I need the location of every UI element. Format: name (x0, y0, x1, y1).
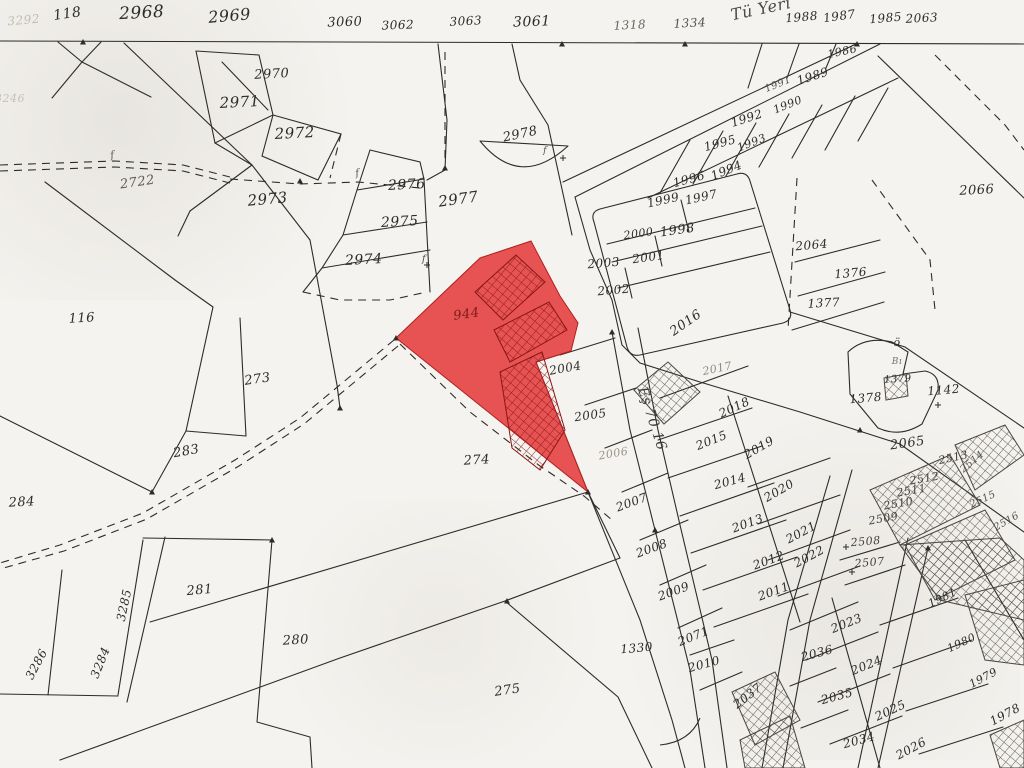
parcel-label-2005: 2005 (572, 406, 607, 425)
parcel-label-2014: 2014 (711, 470, 747, 492)
path-boundary-dashed-line (872, 180, 935, 310)
parcel-label-2722: 2722 (118, 173, 156, 193)
parcel-boundary-line (858, 88, 888, 141)
parcel-boundary-line (790, 312, 1024, 428)
parcel-label-Bı: Bı (891, 357, 903, 367)
parcel-boundary-line (563, 44, 856, 182)
parcel-label-ö: ö (893, 336, 900, 349)
parcel-boundary-line (0, 416, 152, 492)
parcel-label-2018: 2018 (716, 394, 752, 421)
parcel-label-2015: 2015 (693, 428, 729, 454)
parcel-boundary-line (58, 42, 101, 62)
survey-mark-plus (935, 402, 941, 408)
parcel-label-1991: 1991 (763, 74, 793, 94)
path-boundary-dashed-line (303, 292, 427, 300)
parcel-label-2023: 2023 (828, 611, 864, 637)
road-name-label: Tü Yeri (729, 0, 793, 24)
parcel-label-2507: 2507 (853, 555, 885, 571)
parcel-boundary-line (175, 280, 213, 307)
parcel-label-2008: 2008 (633, 536, 669, 561)
parcel-boundary-line (186, 431, 246, 436)
survey-mark-triangle (682, 41, 688, 47)
parcel-label-3060: 3060 (327, 14, 363, 30)
parcel-label-1993: 1993 (735, 131, 768, 154)
parcel-label-3061: 3061 (513, 13, 551, 30)
parcel-boundary-line (748, 44, 762, 88)
parcel-boundary-line (370, 150, 424, 179)
parcel-label-2006: 2006 (597, 445, 630, 463)
survey-mark-triangle (297, 178, 303, 184)
parcel-label-273: 273 (242, 370, 271, 389)
parcel-label-116: 116 (68, 310, 95, 326)
parcel-label-2022: 2022 (791, 543, 827, 571)
survey-mark-triangle (609, 329, 615, 335)
parcel-label-1318: 1318 (613, 17, 646, 33)
parcel-label-2973: 2973 (246, 188, 289, 210)
survey-mark-plus (843, 544, 849, 550)
parcel-label-283: 283 (171, 442, 201, 462)
parcel-boundary-line (605, 430, 652, 448)
parcel-label-275: 275 (492, 681, 521, 700)
survey-mark-plus (560, 155, 566, 161)
parcel-label-2013: 2013 (729, 511, 765, 536)
parcel-label-f: f (542, 146, 548, 156)
parcel-label-284: 284 (7, 494, 35, 510)
parcel-label-118: 118 (52, 4, 82, 24)
parcel-label-2012: 2012 (750, 548, 786, 573)
parcel-label-2007: 2007 (613, 490, 649, 515)
parcel-label-1979: 1979 (967, 665, 1000, 691)
parcel-label-3246: 3246 (0, 92, 25, 105)
parcel-boundary-line (303, 150, 370, 292)
parcel-boundary-line (215, 143, 252, 165)
parcel-label-2025: 2025 (872, 697, 908, 724)
parcel-label-2026: 2026 (893, 735, 929, 763)
parcel-label-2516: 2516 (991, 510, 1021, 534)
parcel-label-2016: 2016 (666, 307, 704, 340)
parcel-label-2508: 2508 (849, 534, 881, 550)
parcel-boundary-line (825, 96, 855, 150)
parcel-boundary-line (60, 601, 505, 760)
parcel-boundary-line (424, 179, 430, 292)
parcel-label-1980: 1980 (945, 631, 978, 655)
building-hatches (634, 362, 1024, 768)
survey-mark-triangle (652, 527, 658, 533)
parcel-label-2011: 2011 (755, 579, 791, 604)
parcel-label-280: 280 (281, 632, 309, 648)
building-hatch (965, 580, 1024, 665)
parcel-label-1142: 1142 (927, 382, 961, 399)
parcel-label-1987: 1987 (822, 7, 856, 25)
parcel-label-2004: 2004 (547, 358, 582, 378)
parcel-label-2009: 2009 (655, 579, 691, 604)
parcel-boundary-line (505, 558, 620, 601)
parcel-label-2970: 2970 (253, 66, 290, 83)
parcel-label-1992: 1992 (729, 107, 764, 130)
parcel-label-2971: 2971 (218, 92, 260, 112)
survey-mark-triangle (857, 427, 863, 433)
parcel-boundary-line (82, 62, 151, 97)
parcel-label-2977: 2977 (436, 187, 479, 211)
parcel-boundary-line (190, 165, 252, 211)
parcel-boundary-line (257, 722, 312, 768)
parcel-boundary-line (801, 710, 848, 728)
parcel-label-1985: 1985 (869, 10, 903, 27)
parcel-label-2034: 2034 (840, 729, 876, 751)
parcel-label-281: 281 (185, 582, 214, 599)
parcel-label-274: 274 (462, 452, 490, 468)
parcel-label-f: f (109, 149, 118, 161)
parcel-label-2064: 2064 (794, 237, 829, 254)
parcel-label-2976: 2976 (387, 176, 426, 194)
parcel-label-2036: 2036 (798, 642, 834, 664)
parcel-label-2972: 2972 (273, 123, 315, 143)
parcel-boundary-line (512, 44, 548, 125)
parcel-label-2065: 2065 (888, 434, 926, 454)
parcel-boundary-line (700, 672, 742, 690)
parcel-boundary-line (150, 492, 588, 622)
parcel-label-2003: 2003 (586, 255, 621, 272)
parcel-boundary-line (575, 197, 622, 345)
parcel-boundary-line (48, 570, 62, 695)
parcel-boundary-line (45, 182, 175, 280)
parcel-boundary-line (0, 694, 118, 696)
parcel-boundary-line (257, 540, 272, 722)
parcel-boundary-line (919, 727, 1003, 754)
path-boundary-dashed-line (330, 134, 341, 178)
parcel-boundary-line (438, 44, 447, 170)
parcel-boundary-line (790, 668, 836, 686)
parcel-boundary-line (427, 170, 445, 180)
parcel-label-1376: 1376 (834, 265, 868, 282)
parcel-boundary-line (588, 492, 685, 768)
survey-mark-triangle (149, 489, 155, 495)
parcel-label-2968: 2968 (118, 2, 165, 24)
parcel-label-3285: 3285 (114, 588, 134, 623)
parcel-label-1986: 1986 (826, 42, 858, 61)
parcel-label-2002: 2002 (596, 282, 631, 299)
path-boundary-dashed-line (0, 346, 398, 569)
parcel-boundary-line (186, 307, 213, 431)
parcel-label-2975: 2975 (380, 213, 419, 231)
survey-mark-triangle (442, 165, 448, 171)
path-boundary-dashed-line (935, 55, 1024, 150)
curved-boundary (660, 718, 700, 745)
path-boundary-dashed-line (0, 167, 230, 183)
parcel-label-1378: 1378 (849, 390, 883, 407)
parcel-label-2066: 2066 (958, 182, 995, 199)
map-viewport: 3292324611829682969306030623063306113181… (0, 0, 1024, 768)
parcel-label-3286: 3286 (23, 646, 51, 681)
parcel-label-2063: 2063 (904, 10, 938, 26)
parcel-label-1989: 1989 (795, 65, 830, 88)
parcel-label-1995: 1995 (702, 132, 737, 154)
parcel-label-2978: 2978 (501, 124, 539, 146)
parcel-label-1998: 1998 (659, 221, 696, 241)
parcel-boundary-line (480, 141, 568, 146)
parcel-label-2974: 2974 (344, 251, 383, 269)
cadastral-map: 3292324611829682969306030623063306113181… (0, 0, 1024, 768)
parcel-boundary-line (792, 105, 822, 158)
parcel-label-2021: 2021 (783, 519, 819, 547)
parcel-boundary-line (585, 388, 636, 405)
parcel-label-1999: 1999 (646, 190, 681, 210)
parcel-label-1379: 1379 (884, 373, 912, 385)
parcel-label-1334: 1334 (673, 15, 706, 31)
parcel-label-2017: 2017 (700, 359, 733, 378)
parcel-label-2019: 2019 (741, 433, 777, 462)
parcel-boundary-line (52, 62, 82, 98)
parcel-label-1377: 1377 (807, 295, 840, 311)
parcel-label-3062: 3062 (381, 17, 414, 32)
parcel-boundary-line (152, 431, 186, 492)
parcel-boundary-line (178, 211, 190, 236)
parcel-label-1994: 1994 (709, 158, 744, 183)
parcel-label-2001: 2001 (630, 248, 665, 267)
parcel-label-2035: 2035 (818, 685, 854, 707)
survey-mark-triangle (559, 41, 565, 47)
parcel-label-3284: 3284 (88, 645, 113, 680)
parcel-label-1330: 1330 (620, 640, 654, 657)
parcel-label-2969: 2969 (206, 4, 251, 27)
parcel-label-2000: 2000 (622, 225, 655, 242)
parcel-boundary-line (878, 56, 1024, 198)
survey-mark-triangle (337, 405, 343, 411)
parcel-boundary-line (505, 601, 652, 768)
parcel-label-1997: 1997 (684, 187, 719, 207)
parcel-label-3292: 3292 (7, 12, 41, 29)
parcel-boundary-line (143, 538, 272, 540)
parcel-label-2010: 2010 (685, 653, 721, 675)
parcel-label-3063: 3063 (449, 13, 482, 29)
